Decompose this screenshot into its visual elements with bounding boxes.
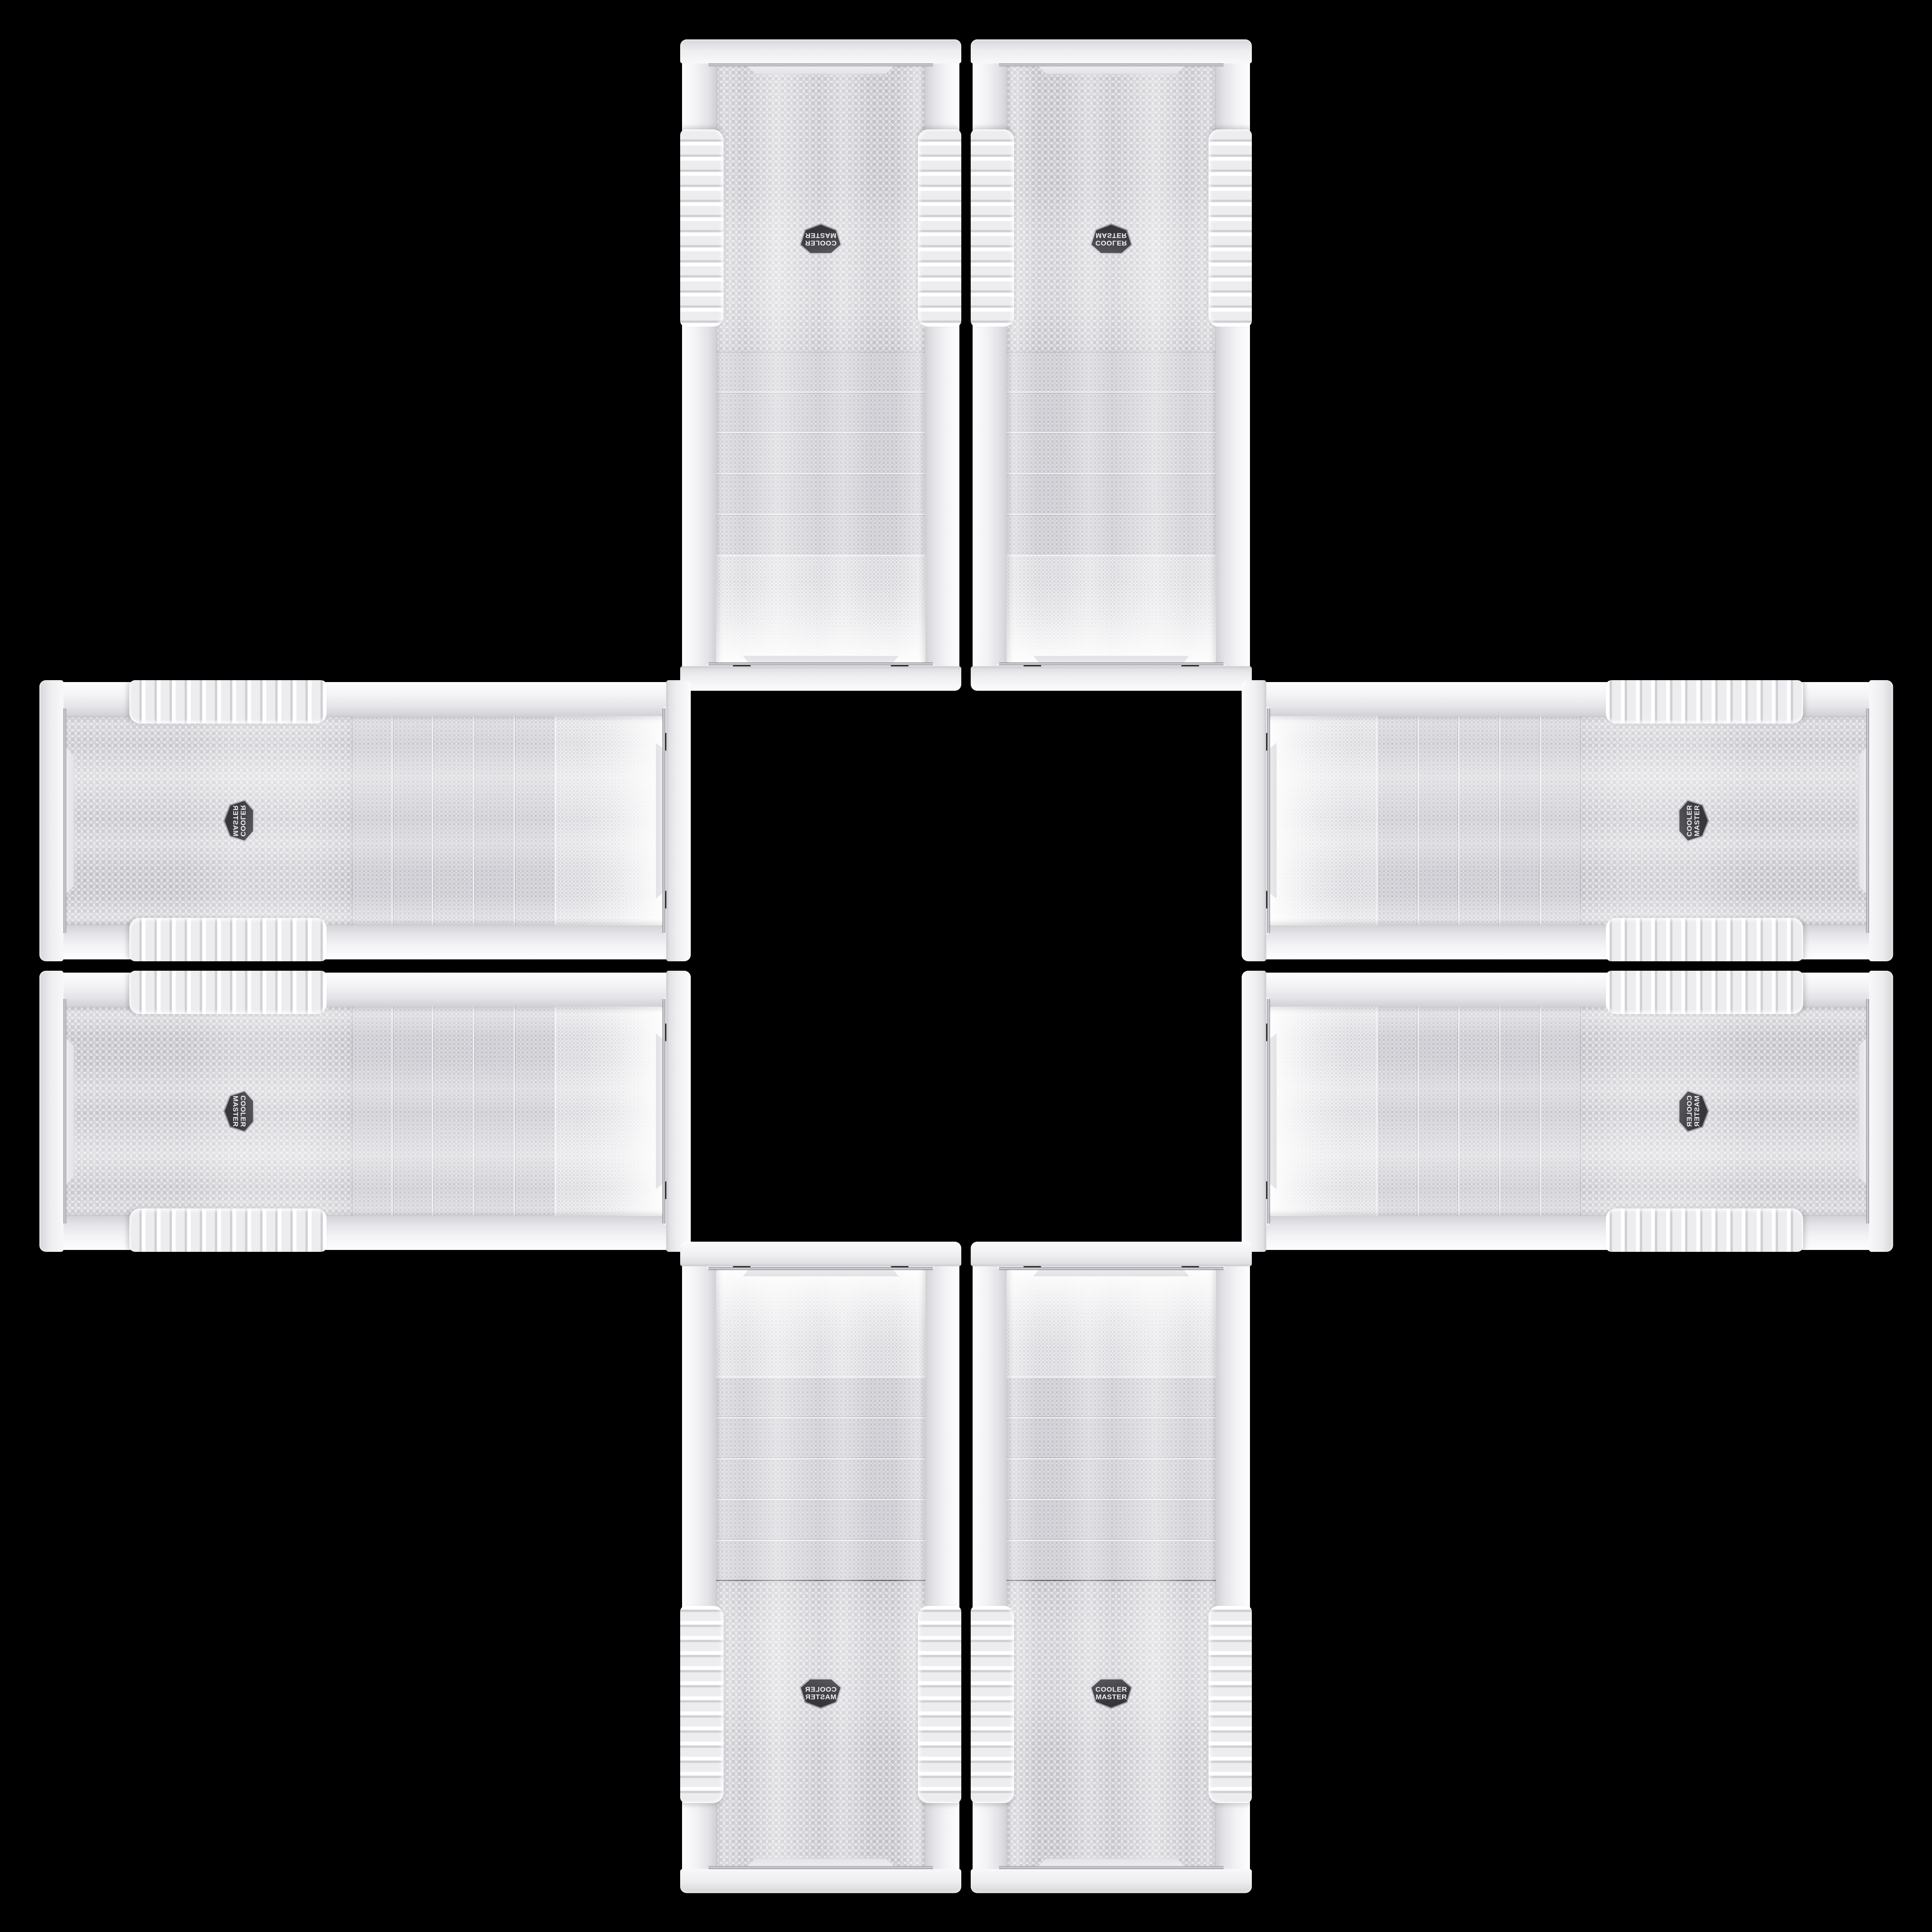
bottom-cap	[680, 1869, 961, 1893]
case-panel-top-left: COOLER MASTER	[679, 39, 962, 691]
drive-bay-cover	[1417, 999, 1458, 1223]
drive-bay-cover	[1499, 709, 1540, 933]
grip-ridges-left	[971, 129, 1014, 326]
front-intake-mesh-grille	[999, 66, 1223, 351]
bottom-chrome-rim	[1866, 708, 1869, 933]
badge-text-line1: COOLER	[1686, 1095, 1693, 1127]
case-panel-right-top: COOLER MASTER	[1241, 679, 1893, 962]
bottom-chrome-rim	[999, 1866, 1224, 1869]
drive-bay-cover	[433, 709, 474, 933]
bottom-chrome-rim	[63, 708, 66, 933]
top-cap	[666, 971, 691, 1252]
top-chrome-rim	[1267, 708, 1270, 933]
badge-text-line1: COOLER	[1686, 805, 1693, 836]
case-front-bezel: COOLER MASTER	[1241, 679, 1893, 962]
drive-bay-cover	[1458, 999, 1499, 1223]
drive-bay-cover	[351, 999, 392, 1223]
front-intake-mesh-grille	[1581, 709, 1866, 933]
case-panel-left-bottom: COOLER MASTER	[39, 970, 691, 1253]
drive-bay-cover	[999, 1499, 1223, 1540]
badge-text-line2: MASTER	[1693, 805, 1701, 836]
badge-text-line1: COOLER	[805, 239, 836, 246]
bottom-chrome-rim	[999, 63, 1224, 66]
badge-text-line1: COOLER	[239, 805, 246, 836]
drive-bay-covers	[351, 999, 556, 1223]
case-front-bezel: COOLER MASTER	[970, 1241, 1253, 1893]
top-curved-mesh-grille	[1270, 999, 1376, 1223]
drive-bay-cover	[474, 999, 515, 1223]
case-panel-right-bottom: COOLER MASTER	[1241, 970, 1893, 1253]
drive-bay-cover	[999, 1376, 1223, 1417]
top-cap	[1241, 680, 1266, 961]
grip-ridges-right	[1606, 680, 1803, 724]
drive-bay-cover	[351, 709, 392, 933]
drive-bay-cover	[709, 515, 933, 556]
case-panel-left-top: COOLER MASTER	[39, 679, 691, 962]
top-cap	[666, 680, 691, 961]
grip-ridges-right	[1606, 1208, 1803, 1252]
case-front-bezel: COOLER MASTER	[970, 39, 1253, 691]
drive-bay-cover	[999, 1417, 1223, 1458]
top-curved-mesh-grille	[999, 556, 1223, 662]
badge-text-line2: MASTER	[231, 805, 239, 836]
bottom-cap	[1869, 971, 1893, 1252]
drive-bay-cover	[999, 1540, 1223, 1581]
front-intake-mesh-grille	[66, 999, 351, 1223]
cooler-master-badge: COOLER MASTER	[1091, 225, 1131, 253]
drive-bay-cover	[392, 999, 433, 1223]
drive-bay-covers	[999, 1376, 1223, 1581]
cooler-master-badge: COOLER MASTER	[225, 1091, 253, 1131]
drive-bay-cover	[709, 1458, 933, 1499]
grip-ridges-right	[680, 1606, 724, 1803]
bottom-cap	[680, 39, 961, 63]
bottom-cap	[971, 39, 1252, 63]
grip-ridges-right	[1208, 1606, 1252, 1803]
grip-ridges-left	[129, 971, 326, 1014]
top-cap	[1241, 971, 1266, 1252]
top-chrome-rim	[999, 662, 1224, 665]
top-curved-mesh-grille	[1270, 709, 1376, 933]
badge-text-line2: MASTER	[805, 231, 836, 239]
drive-bay-covers	[709, 1376, 933, 1581]
badge-text-line1: COOLER	[239, 1095, 246, 1127]
drive-bay-cover	[1417, 709, 1458, 933]
top-cap	[680, 666, 961, 691]
drive-bay-cover	[709, 1417, 933, 1458]
top-curved-mesh-grille	[709, 556, 933, 662]
bottom-cap	[971, 1869, 1252, 1893]
drive-bay-cover	[709, 1540, 933, 1581]
drive-bay-cover	[709, 1499, 933, 1540]
drive-bay-covers	[709, 351, 933, 556]
bottom-cap	[39, 971, 63, 1252]
drive-bay-cover	[709, 474, 933, 515]
bottom-cap	[39, 680, 63, 961]
top-curved-mesh-grille	[556, 709, 662, 933]
cooler-master-badge: COOLER MASTER	[801, 1679, 841, 1707]
drive-bay-cover	[1540, 999, 1581, 1223]
front-intake-mesh-grille	[709, 66, 933, 351]
drive-bay-cover	[515, 709, 556, 933]
badge-text-line2: MASTER	[1096, 231, 1127, 239]
cooler-master-badge: COOLER MASTER	[1679, 1091, 1707, 1131]
top-chrome-rim	[1267, 999, 1270, 1224]
drive-bay-covers	[1376, 999, 1581, 1223]
drive-bay-cover	[1376, 709, 1417, 933]
drive-bay-covers	[1376, 709, 1581, 933]
case-front-bezel: COOLER MASTER	[39, 970, 691, 1253]
drive-bay-cover	[709, 392, 933, 433]
grip-ridges-left	[1606, 918, 1803, 961]
drive-bay-cover	[999, 515, 1223, 556]
drive-bay-cover	[515, 999, 556, 1223]
case-front-bezel: COOLER MASTER	[679, 39, 962, 691]
case-front-bezel: COOLER MASTER	[1241, 970, 1893, 1253]
badge-text-line1: COOLER	[1095, 1686, 1127, 1693]
cooler-master-badge: COOLER MASTER	[1091, 1679, 1131, 1707]
top-chrome-rim	[999, 1267, 1224, 1270]
drive-bay-cover	[999, 351, 1223, 392]
grip-ridges-left	[1606, 971, 1803, 1014]
drive-bay-cover	[709, 1376, 933, 1417]
top-chrome-rim	[708, 662, 933, 665]
front-intake-mesh-grille	[66, 709, 351, 933]
top-curved-mesh-grille	[709, 1270, 933, 1376]
drive-bay-cover	[999, 474, 1223, 515]
grip-ridges-left	[129, 918, 326, 961]
grip-ridges-left	[971, 1606, 1014, 1803]
cooler-master-badge: COOLER MASTER	[801, 225, 841, 253]
product-collage-canvas: COOLER MASTER COOLER	[0, 0, 1932, 1932]
case-panel-bottom-left: COOLER MASTER	[679, 1241, 962, 1893]
case-front-bezel: COOLER MASTER	[39, 679, 691, 962]
case-panel-bottom-right: COOLER MASTER	[970, 1241, 1253, 1893]
drive-bay-cover	[999, 1458, 1223, 1499]
drive-bay-cover	[1540, 709, 1581, 933]
drive-bay-cover	[709, 433, 933, 474]
top-curved-mesh-grille	[999, 1270, 1223, 1376]
case-panel-top-right: COOLER MASTER	[970, 39, 1253, 691]
badge-text-line2: MASTER	[1693, 1096, 1701, 1127]
grip-ridges-left	[918, 129, 961, 326]
top-chrome-rim	[662, 708, 665, 933]
drive-bay-cover	[433, 999, 474, 1223]
drive-bay-cover	[1458, 709, 1499, 933]
bottom-cap	[1869, 680, 1893, 961]
grip-ridges-right	[1208, 129, 1252, 326]
drive-bay-covers	[351, 709, 556, 933]
drive-bay-cover	[474, 709, 515, 933]
front-intake-mesh-grille	[999, 1581, 1223, 1866]
badge-text-line2: MASTER	[805, 1693, 836, 1701]
cooler-master-badge: COOLER MASTER	[1679, 801, 1707, 841]
drive-bay-cover	[709, 351, 933, 392]
bottom-chrome-rim	[708, 1866, 933, 1869]
bottom-chrome-rim	[1866, 999, 1869, 1224]
grip-ridges-left	[918, 1606, 961, 1803]
drive-bay-cover	[1376, 999, 1417, 1223]
top-cap	[971, 666, 1252, 691]
badge-text-line2: MASTER	[231, 1096, 239, 1127]
drive-bay-cover	[999, 433, 1223, 474]
front-intake-mesh-grille	[709, 1581, 933, 1866]
grip-ridges-right	[129, 680, 326, 724]
cooler-master-badge: COOLER MASTER	[225, 801, 253, 841]
top-cap	[971, 1241, 1252, 1266]
case-front-bezel: COOLER MASTER	[679, 1241, 962, 1893]
drive-bay-cover	[999, 392, 1223, 433]
top-cap	[680, 1241, 961, 1266]
top-chrome-rim	[662, 999, 665, 1224]
grip-ridges-right	[129, 1208, 326, 1252]
drive-bay-cover	[1499, 999, 1540, 1223]
bottom-chrome-rim	[708, 63, 933, 66]
top-curved-mesh-grille	[556, 999, 662, 1223]
grip-ridges-right	[680, 129, 724, 326]
bottom-chrome-rim	[63, 999, 66, 1224]
badge-text-line2: MASTER	[1096, 1693, 1127, 1701]
front-intake-mesh-grille	[1581, 999, 1866, 1223]
badge-text-line1: COOLER	[1095, 239, 1127, 246]
drive-bay-cover	[392, 709, 433, 933]
top-chrome-rim	[708, 1267, 933, 1270]
drive-bay-covers	[999, 351, 1223, 556]
badge-text-line1: COOLER	[805, 1686, 836, 1693]
